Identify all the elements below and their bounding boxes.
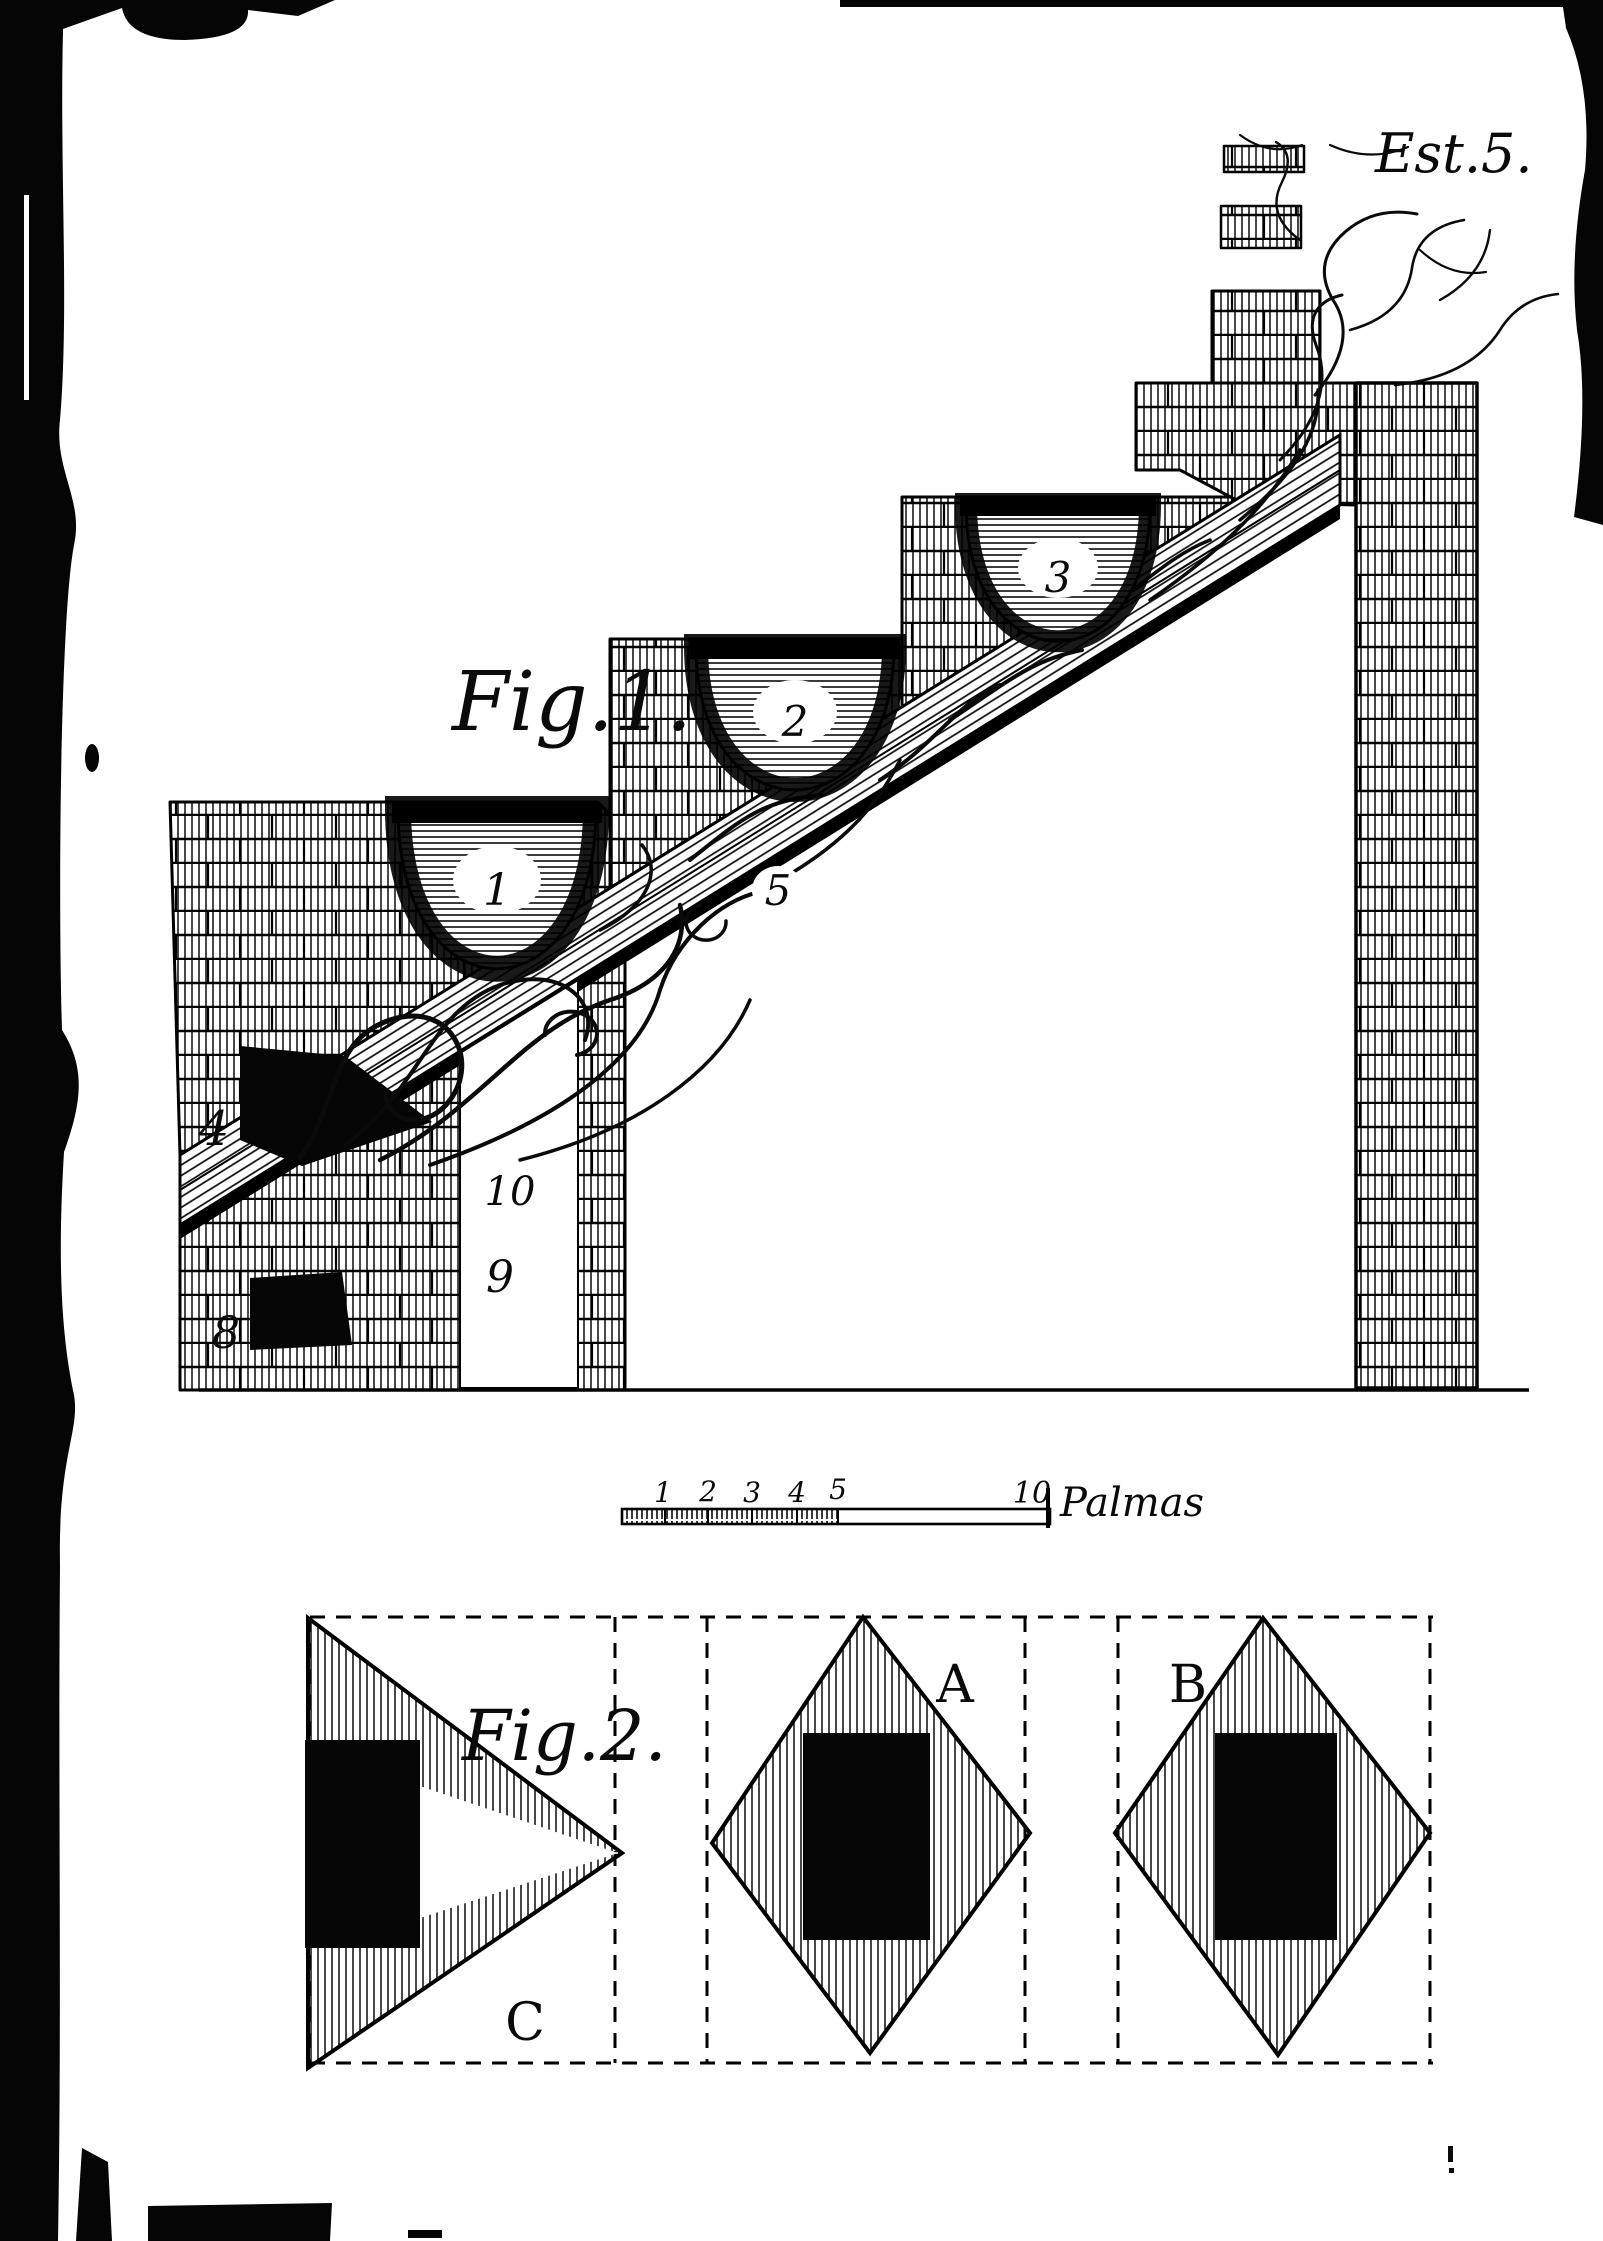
template-a-core [803,1733,930,1940]
right-edge-band [1562,0,1603,525]
scale-bar: 1 2 3 4 5 10 Palmas [622,1473,1204,1528]
vent-number-lower: 8 [212,1308,240,1359]
bottom-left-blob [76,2148,112,2241]
cauldron-1-number: 1 [483,865,511,916]
corner-speck [1448,2146,1453,2162]
cauldron-2-number: 2 [781,697,809,746]
vent-number-upper: 10 [485,1169,536,1215]
scale-tick-4: 4 [787,1476,806,1509]
binding-shadow-left [0,0,79,2241]
template-b-letter: B [1169,1655,1207,1715]
corner-speck-dot [1449,2168,1454,2173]
engraving-plate: Est.5. [0,0,1603,2241]
scanned-plate-page: Est.5. [0,0,1603,2241]
template-c-shape [305,1618,622,2068]
cauldron-3-number: 3 [1045,553,1072,602]
scale-tick-3: 3 [743,1476,761,1509]
flame-number: 5 [765,866,792,915]
template-c-core [305,1740,420,1948]
margin-speck [85,744,99,772]
template-b-core [1215,1733,1337,1940]
figure-1: 1 2 3 5 Fig.1. 4 10 9 8 [170,135,1558,1390]
scale-tick-1: 1 [654,1476,672,1509]
template-a-shape [712,1617,1030,2053]
scale-end-number: 10 [1013,1476,1051,1511]
scale-unit-label: Palmas [1059,1480,1204,1526]
template-b-shape [1115,1618,1430,2055]
figure2-label: Fig.2. [460,1695,667,1777]
ash-niche [250,1272,352,1350]
flue-number: 4 [198,1101,230,1157]
figure1-label: Fig.1. [450,655,692,750]
binding-crack [24,195,29,400]
right-wall [1356,383,1477,1388]
figure-2: Fig.2. A B C [305,1617,1433,2068]
scale-bar-hatched-half [622,1509,838,1524]
bottom-center-blob [148,2203,332,2241]
plate-number-label: Est.5. [1374,122,1533,185]
chimney [1212,146,1320,383]
scale-tick-5: 5 [829,1473,847,1506]
scale-tick-2: 2 [698,1475,717,1508]
template-c-letter: C [505,1993,545,2053]
template-a-letter: A [935,1655,975,1715]
vent-number-middle: 9 [486,1252,514,1303]
top-edge-line [840,0,1603,7]
bottom-speck [408,2230,442,2238]
